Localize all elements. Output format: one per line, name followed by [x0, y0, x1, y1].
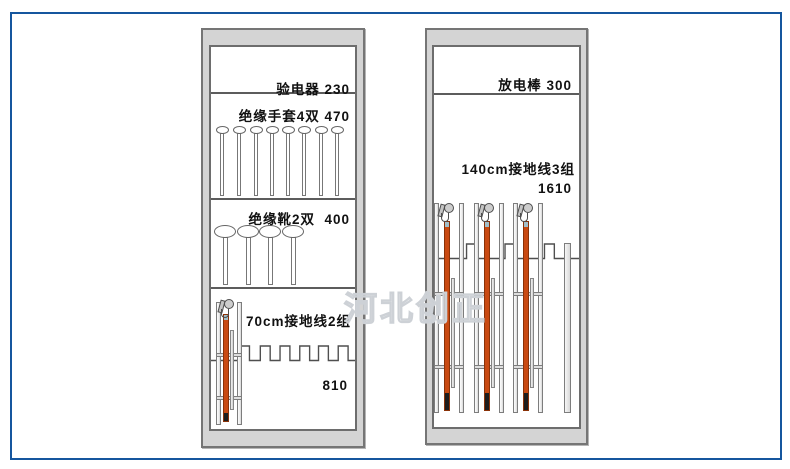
- peg-stem: [254, 133, 258, 196]
- rod-tip: [224, 413, 228, 421]
- crossbar: [513, 365, 543, 369]
- label-70cm-ground-wire: 70cm接地线2组: [246, 310, 351, 330]
- clamp-wheel: [484, 203, 494, 213]
- peg-knob: [331, 126, 344, 134]
- ground-wire-pole: [491, 278, 495, 388]
- label-discharge-rod: 放电棒 300: [498, 74, 572, 94]
- glove-hanger-peg: [282, 126, 295, 198]
- glove-hanger-peg: [250, 126, 263, 198]
- peg-knob: [266, 126, 279, 134]
- ground-clamp: [438, 203, 458, 224]
- crossbar: [434, 365, 464, 369]
- hanger-rail-left: [513, 203, 518, 413]
- cabinet-right-inner-panel: 放电棒 300 140cm接地线3组 1610: [432, 45, 581, 429]
- glove-hanger-peg: [315, 126, 328, 198]
- peg-stem: [223, 237, 228, 285]
- peg-knob: [282, 126, 295, 134]
- boot-hanger-peg: [237, 225, 259, 287]
- ground-wire-assembly: [216, 302, 242, 425]
- ground-clamp: [218, 299, 238, 318]
- label-voltage-detector: 验电器 230: [276, 78, 350, 98]
- ground-wire-pole: [530, 278, 534, 388]
- safety-tool-cabinet-left: 验电器 230 绝缘手套4双 470 绝缘靴2双 400 70cm接地线2组 8…: [201, 28, 365, 448]
- label-insulated-gloves: 绝缘手套4双 470: [239, 105, 350, 125]
- insulated-operating-rod: [224, 315, 228, 421]
- clamp-hook: [221, 309, 229, 318]
- crossbar: [474, 365, 504, 369]
- ground-wire-assembly: [513, 203, 543, 413]
- peg-knob: [298, 126, 311, 134]
- glove-hanger-peg: [233, 126, 246, 198]
- rod-tip: [524, 393, 528, 410]
- peg-stem: [286, 133, 290, 196]
- clamp-wheel: [224, 299, 234, 309]
- boot-hanger-peg: [282, 225, 304, 287]
- ground-wire-pole: [230, 330, 234, 410]
- hanger-rail-right: [237, 302, 242, 425]
- peg-stem: [319, 133, 323, 196]
- clamp-wheel: [523, 203, 533, 213]
- watermark-text: 河北创正: [344, 282, 488, 330]
- ground-clamp: [478, 203, 498, 224]
- spare-hanger-rail: [564, 243, 571, 413]
- peg-knob: [250, 126, 263, 134]
- peg-stem: [270, 133, 274, 196]
- boot-hanger-peg: [259, 225, 281, 287]
- peg-stem: [237, 133, 241, 196]
- clamp-wheel: [444, 203, 454, 213]
- glove-hanger-peg: [298, 126, 311, 198]
- hanger-rail-left: [216, 302, 221, 425]
- label-height-810: 810: [322, 378, 348, 393]
- clamp-hook: [481, 213, 489, 222]
- peg-stem: [268, 237, 273, 285]
- shelf-divider: [211, 198, 355, 200]
- glove-hanger-peg: [216, 126, 229, 198]
- rod-tip: [485, 393, 489, 410]
- peg-stem: [291, 237, 296, 285]
- peg-knob: [233, 126, 246, 134]
- hanger-rail-right: [499, 203, 504, 413]
- peg-stem: [335, 133, 339, 196]
- page-border: [10, 12, 782, 460]
- peg-knob: [214, 225, 236, 238]
- peg-stem: [302, 133, 306, 196]
- peg-stem: [246, 237, 251, 285]
- boot-hanger-peg: [214, 225, 236, 287]
- hanger-rail-right: [538, 203, 543, 413]
- label-140cm-ground-wire: 140cm接地线3组: [461, 158, 575, 178]
- glove-hanger-peg: [331, 126, 344, 198]
- clamp-hook: [520, 213, 528, 222]
- peg-stem: [220, 133, 224, 196]
- label-insulated-boots: 绝缘靴2双 400: [248, 208, 350, 228]
- safety-tool-cabinet-right: 放电棒 300 140cm接地线3组 1610: [425, 28, 588, 445]
- rod-tip: [445, 393, 449, 410]
- shelf-divider: [211, 287, 355, 289]
- crossbar: [216, 396, 242, 400]
- label-height-1610: 1610: [538, 181, 572, 196]
- cabinet-left-inner-panel: 验电器 230 绝缘手套4双 470 绝缘靴2双 400 70cm接地线2组 8…: [209, 45, 357, 431]
- peg-knob: [216, 126, 229, 134]
- peg-knob: [315, 126, 328, 134]
- crossbar: [216, 353, 242, 357]
- insulated-operating-rod: [524, 222, 528, 410]
- ground-clamp: [517, 203, 537, 224]
- glove-hanger-peg: [266, 126, 279, 198]
- cabinet-layout-diagram: 验电器 230 绝缘手套4双 470 绝缘靴2双 400 70cm接地线2组 8…: [0, 0, 790, 469]
- crossbar: [513, 292, 543, 296]
- clamp-hook: [441, 213, 449, 222]
